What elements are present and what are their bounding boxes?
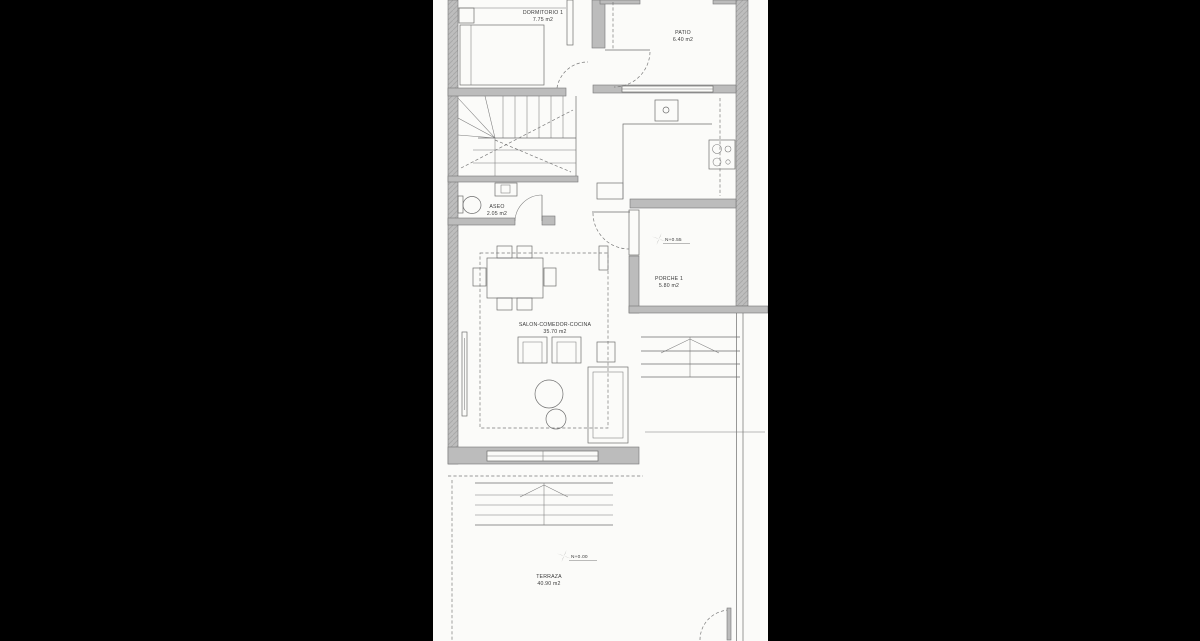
wall-hall xyxy=(592,0,605,48)
gate-arc xyxy=(700,610,730,640)
wall-right xyxy=(736,0,748,306)
dining-table xyxy=(487,258,543,298)
staircase xyxy=(458,96,576,176)
kitchen-counter-end xyxy=(597,183,623,199)
floor-plan-sheet: DORMITORIO 1 7.75 m2 PATIO 6.40 m2 ASEO … xyxy=(433,0,768,641)
label-aseo-area: 2.05 m2 xyxy=(487,211,507,217)
label-salon-area: 35.70 m2 xyxy=(543,329,566,335)
stairs-walkline-2 xyxy=(495,140,571,172)
openings xyxy=(487,0,713,461)
armchair-seat xyxy=(523,342,542,363)
level-text-porche: N+0.55 xyxy=(665,237,682,243)
stove-burner xyxy=(726,160,730,164)
wall-aseo-bottom-right xyxy=(542,216,555,225)
dining-chair xyxy=(473,268,486,286)
dining-chair xyxy=(544,268,556,286)
label-patio-area: 6.40 m2 xyxy=(673,37,693,43)
dorm-door-arc xyxy=(557,62,588,88)
bed xyxy=(460,25,544,85)
dining-chair xyxy=(517,246,532,258)
stove-burner xyxy=(725,146,731,152)
wall-left xyxy=(448,0,458,464)
sofa xyxy=(588,367,628,443)
label-terraza-name: TERRAZA xyxy=(536,574,562,580)
armchair xyxy=(518,337,547,363)
wall-dorm-bottom xyxy=(448,88,566,96)
gate-leaf xyxy=(727,608,731,640)
salon-furniture xyxy=(462,246,628,443)
label-terraza-area: 40.90 m2 xyxy=(537,581,560,587)
wall-stub-top-2 xyxy=(713,0,736,4)
kitchen-sink xyxy=(655,100,678,121)
porche-steps xyxy=(641,337,740,377)
exterior-walls xyxy=(448,0,748,464)
wall-kitchen-bottom xyxy=(630,199,736,208)
aseo-door-arc xyxy=(515,195,542,221)
coffee-table-round-small xyxy=(546,409,566,429)
stairs-walkline-1 xyxy=(461,110,573,168)
nightstand xyxy=(459,8,474,23)
level-marker-icon xyxy=(652,233,666,245)
screen: { "scene": { "background_color": "#00000… xyxy=(0,0,1200,641)
kitchen-fixtures xyxy=(597,98,735,199)
dining-chair xyxy=(517,298,532,310)
patio-door-arc xyxy=(614,52,650,87)
wall-aseo-bottom-left xyxy=(448,218,515,225)
stove xyxy=(709,140,735,169)
wall-porche-front xyxy=(629,306,768,313)
armchair xyxy=(552,337,581,363)
floor-plan-svg: DORMITORIO 1 7.75 m2 PATIO 6.40 m2 ASEO … xyxy=(433,0,768,641)
hall-door-jamb xyxy=(567,0,573,45)
level-text-terraza: N+0.00 xyxy=(571,554,588,560)
aseo-sink-basin xyxy=(501,185,510,193)
entry-cabinet xyxy=(599,246,608,270)
label-aseo-name: ASEO xyxy=(489,204,504,210)
dining-chair xyxy=(497,298,512,310)
wall-stub-top-1 xyxy=(600,0,640,4)
label-salon-name: SALON-COMEDOR-COCINA xyxy=(519,322,592,328)
entry-door-leaf xyxy=(629,210,639,255)
kitchen-counter xyxy=(623,124,712,183)
dining-chair xyxy=(497,246,512,258)
coffee-table-round xyxy=(535,380,563,408)
label-dormitorio-name: DORMITORIO 1 xyxy=(523,10,563,16)
toilet-bowl xyxy=(463,197,481,214)
side-table xyxy=(597,342,615,362)
label-porche-name: PORCHE 1 xyxy=(655,276,683,282)
wall-porche-left xyxy=(629,256,639,313)
armchair-seat xyxy=(557,342,576,363)
toilet-cistern xyxy=(458,196,463,213)
label-patio-name: PATIO xyxy=(675,30,691,36)
letterbox-left xyxy=(0,0,433,641)
room-labels: DORMITORIO 1 7.75 m2 PATIO 6.40 m2 ASEO … xyxy=(487,10,693,587)
interior-walls xyxy=(448,0,768,464)
entry-door-arc xyxy=(593,213,629,249)
wall-stairs-bottom xyxy=(448,176,578,182)
letterbox-right xyxy=(768,0,1200,641)
level-marker-icon xyxy=(557,550,571,562)
label-dormitorio-area: 7.75 m2 xyxy=(533,17,553,23)
kitchen-sink-drain xyxy=(663,107,669,113)
label-porche-area: 5.80 m2 xyxy=(659,283,679,289)
